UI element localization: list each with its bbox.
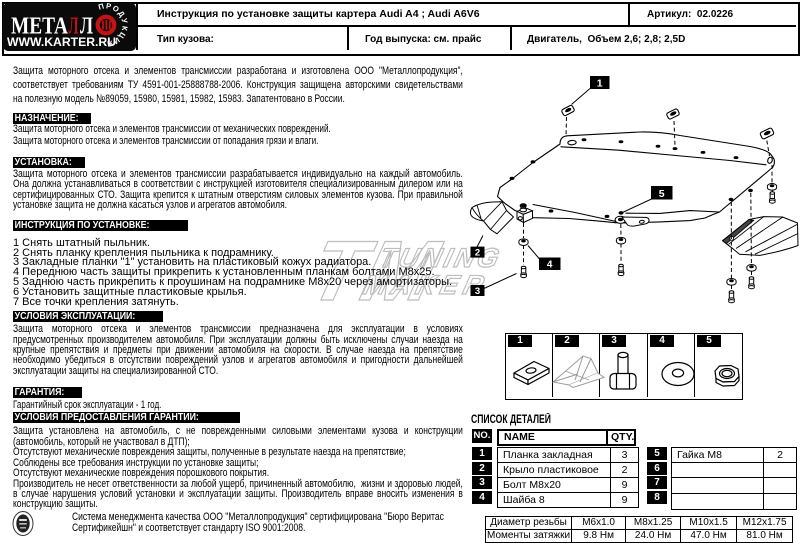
svg-text:2: 2	[475, 248, 480, 259]
svg-text:WWW.KARTER.RU: WWW.KARTER.RU	[7, 35, 116, 49]
svg-text:3: 3	[475, 286, 480, 297]
svg-text:1: 1	[597, 78, 603, 90]
svg-text:4: 4	[547, 260, 553, 271]
svg-text:5: 5	[659, 188, 665, 200]
